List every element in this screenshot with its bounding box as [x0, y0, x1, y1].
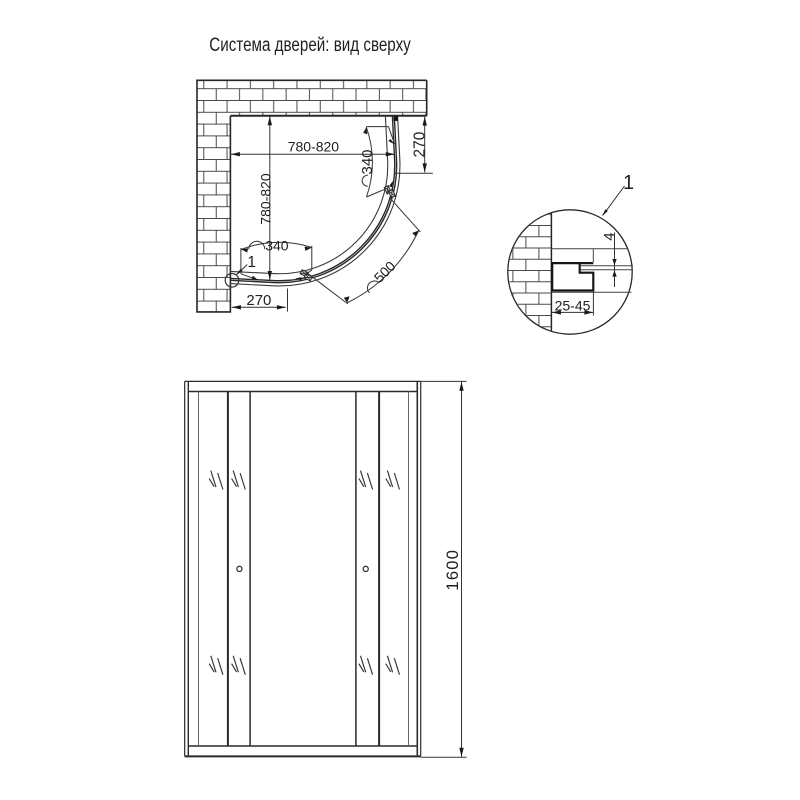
svg-text:1: 1: [247, 254, 256, 271]
svg-text:780-820: 780-820: [288, 139, 340, 155]
svg-text:780-820: 780-820: [258, 173, 274, 225]
svg-text:1600: 1600: [444, 549, 462, 591]
svg-text:340: 340: [359, 149, 376, 174]
svg-text:270: 270: [246, 292, 271, 309]
svg-text:1: 1: [623, 172, 634, 194]
svg-text:340: 340: [265, 238, 289, 254]
svg-text:25-45: 25-45: [555, 297, 591, 313]
svg-text:Система дверей: вид сверху: Система дверей: вид сверху: [209, 33, 411, 55]
svg-text:270: 270: [411, 131, 428, 157]
svg-text:4: 4: [601, 232, 618, 240]
